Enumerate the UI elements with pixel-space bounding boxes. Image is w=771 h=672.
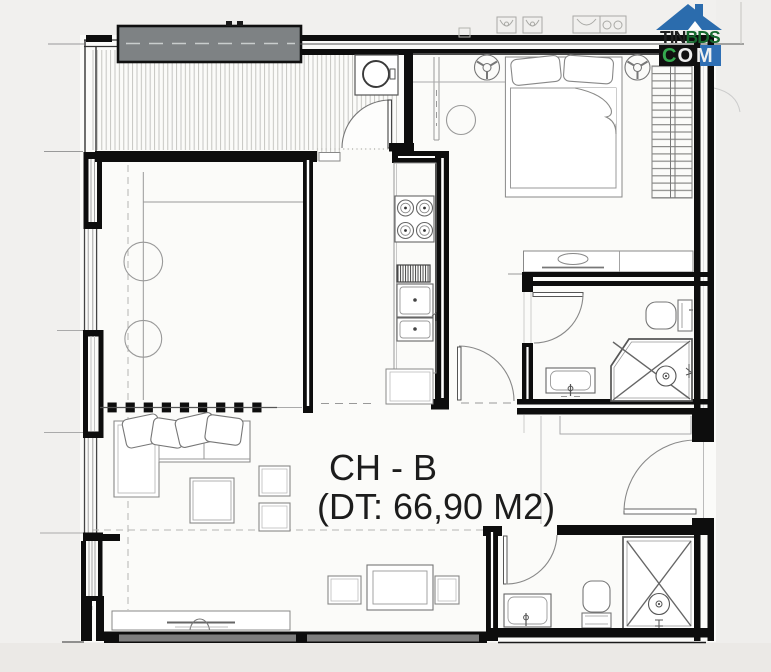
svg-text:COM: COM xyxy=(662,45,713,67)
svg-text:(DT: 66,90 M2): (DT: 66,90 M2) xyxy=(317,486,555,527)
svg-text:TINBDS: TINBDS xyxy=(660,27,720,47)
svg-text:CH - B: CH - B xyxy=(329,447,437,488)
